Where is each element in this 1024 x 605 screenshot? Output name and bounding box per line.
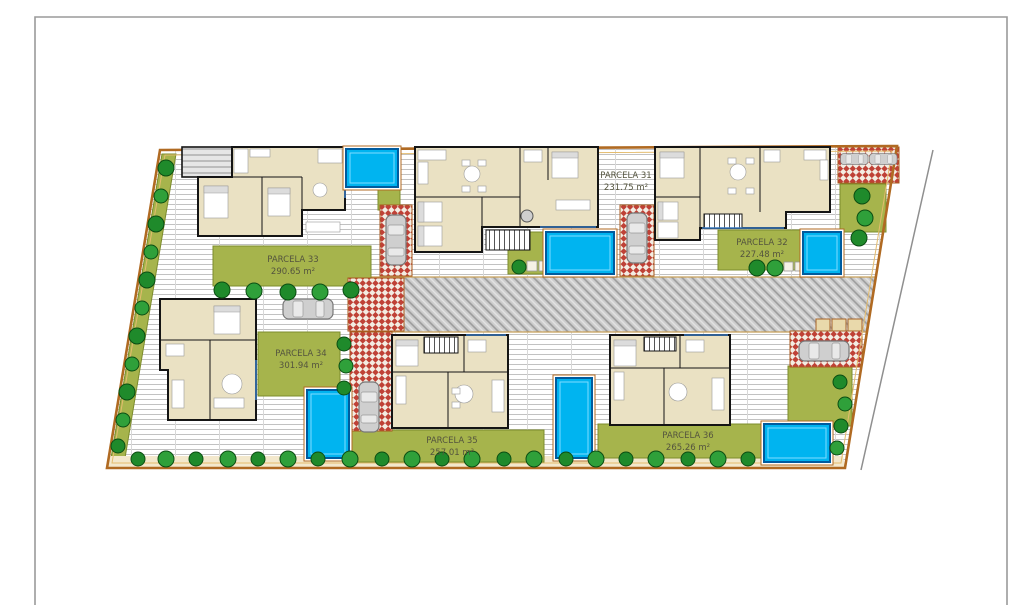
car-corner-2	[870, 154, 898, 165]
car-parcel-31	[386, 215, 406, 265]
svg-text:PARCELA 34: PARCELA 34	[275, 349, 326, 359]
garden-planter	[784, 262, 793, 271]
svg-text:227.48 m²: 227.48 m²	[740, 250, 784, 260]
road-planter	[848, 319, 862, 331]
site-plan-sheet: PARCELA 33 290.65 m² PARCELA 31 231.75 m…	[0, 0, 1024, 605]
site-plan-drawing: PARCELA 33 290.65 m² PARCELA 31 231.75 m…	[0, 0, 1024, 605]
central-road	[348, 277, 876, 332]
svg-text:257.01 m²: 257.01 m²	[430, 448, 474, 458]
svg-text:PARCELA 31: PARCELA 31	[600, 171, 651, 181]
car-corner-1	[841, 154, 869, 165]
pool-parcel-35	[553, 375, 595, 461]
garden-planter	[527, 261, 537, 271]
car-parcel-36	[799, 341, 849, 361]
pool-parcel-32	[800, 229, 844, 277]
car-parcel-34-35	[359, 382, 379, 432]
road-planter	[832, 319, 846, 331]
svg-text:265.26 m²: 265.26 m²	[666, 443, 710, 453]
svg-text:301.94 m²: 301.94 m²	[279, 361, 323, 371]
svg-text:290.65 m²: 290.65 m²	[271, 267, 315, 277]
svg-text:PARCELA 36: PARCELA 36	[662, 431, 713, 441]
tree-column-parcel-34	[337, 337, 353, 395]
tree-parcel-31	[512, 260, 526, 274]
svg-text:231.75 m²: 231.75 m²	[604, 183, 648, 193]
parcel-33-garden	[213, 246, 371, 286]
pool-parcel-33	[343, 146, 401, 190]
villa-parcel-35	[392, 335, 508, 428]
svg-text:PARCELA 35: PARCELA 35	[426, 436, 477, 446]
car-parcel-33	[283, 299, 333, 319]
pool-parcel-36	[761, 421, 833, 465]
pool-parcel-34	[304, 387, 352, 461]
svg-text:PARCELA 32: PARCELA 32	[736, 238, 787, 248]
pool-parcel-31	[543, 229, 617, 277]
villa-parcel-36	[610, 335, 730, 425]
road-planter	[816, 319, 830, 331]
car-parcel-32	[627, 213, 647, 263]
svg-text:PARCELA 33: PARCELA 33	[267, 255, 318, 265]
villa-parcel-33	[182, 147, 345, 236]
villa-parcel-34	[160, 299, 256, 420]
